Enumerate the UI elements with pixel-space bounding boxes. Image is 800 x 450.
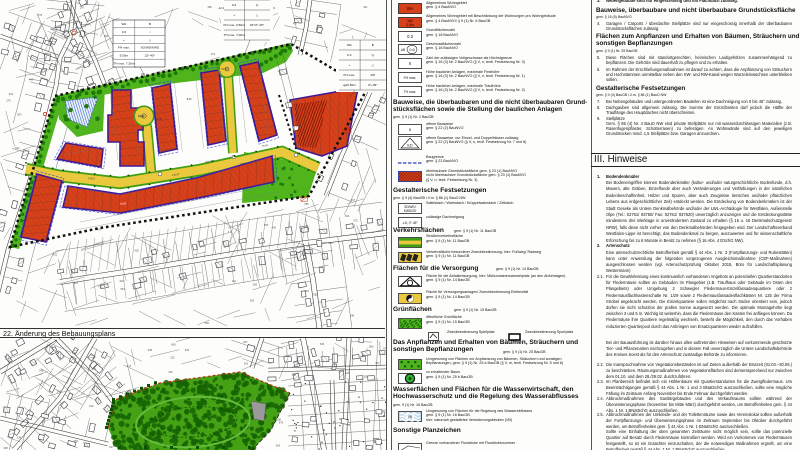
svg-text:0.3: 0.3 xyxy=(122,30,127,34)
svg-text:∠θ, 0°-45°: ∠θ, 0°-45° xyxy=(402,221,418,225)
svg-text:-12,4: -12,4 xyxy=(218,6,224,10)
svg-text:608: 608 xyxy=(171,343,176,347)
svg-text:634: 634 xyxy=(15,146,20,150)
svg-text:299: 299 xyxy=(253,282,258,286)
svg-text:243: 243 xyxy=(57,390,62,394)
svg-text:656: 656 xyxy=(328,241,333,245)
svg-text:B: B xyxy=(372,43,374,47)
svg-text:TH max. 7,00m: TH max. 7,00m xyxy=(224,33,246,37)
svg-text:DH 0°-45°: DH 0°-45° xyxy=(250,23,265,27)
svg-text:74,50: 74,50 xyxy=(221,67,228,71)
svg-text:556: 556 xyxy=(369,345,374,349)
svg-text:396: 396 xyxy=(345,214,350,218)
svg-text:248: 248 xyxy=(350,313,355,317)
svg-text:426: 426 xyxy=(134,249,139,253)
svg-text:○: ○ xyxy=(149,30,151,34)
svg-text:542: 542 xyxy=(9,92,14,96)
svg-text:384: 384 xyxy=(74,439,79,443)
svg-text:2 Wo: 2 Wo xyxy=(406,23,414,27)
svg-text:276: 276 xyxy=(6,99,11,103)
svg-text:WA: WA xyxy=(406,6,413,11)
svg-text:340: 340 xyxy=(92,367,97,371)
svg-text:TH max.: TH max. xyxy=(403,90,416,94)
svg-text:347: 347 xyxy=(375,361,380,365)
svg-text:0.3: 0.3 xyxy=(407,34,413,39)
svg-text:qq/9,50m: qq/9,50m xyxy=(343,83,356,87)
svg-text:0.4: 0.4 xyxy=(347,53,352,57)
svg-text:426: 426 xyxy=(345,371,350,375)
svg-text:FH max. 9,50m: FH max. 9,50m xyxy=(224,23,246,27)
svg-text:636: 636 xyxy=(185,348,190,352)
svg-text:355: 355 xyxy=(304,202,309,206)
svg-text:9,50m: 9,50m xyxy=(120,54,129,58)
svg-text:0.6: 0.6 xyxy=(409,48,414,52)
svg-text:+: + xyxy=(233,13,235,17)
svg-text:329: 329 xyxy=(304,289,309,293)
svg-text:536: 536 xyxy=(320,342,325,346)
svg-text:472: 472 xyxy=(211,52,216,56)
svg-text:431: 431 xyxy=(363,5,368,9)
svg-text:74,50: 74,50 xyxy=(138,114,145,118)
svg-text:443: 443 xyxy=(29,78,34,82)
svg-text:407: 407 xyxy=(293,22,298,26)
svg-text:0°+45°: 0°+45° xyxy=(368,83,378,87)
svg-text:187: 187 xyxy=(80,5,85,9)
svg-text:FH max.: FH max. xyxy=(403,76,416,80)
svg-text:546: 546 xyxy=(292,372,297,376)
svg-text:432: 432 xyxy=(53,252,58,256)
svg-text:638: 638 xyxy=(148,348,153,352)
svg-text:534: 534 xyxy=(17,435,22,439)
svg-text:275: 275 xyxy=(353,218,358,222)
svg-text:VB: VB xyxy=(407,415,412,419)
svg-text:198: 198 xyxy=(104,34,109,38)
svg-text:198: 198 xyxy=(277,418,282,422)
svg-text:207: 207 xyxy=(243,340,248,344)
svg-text:+: + xyxy=(123,38,125,42)
svg-text:483: 483 xyxy=(207,5,212,9)
svg-text:II: II xyxy=(408,61,410,66)
svg-text:FH max.: FH max. xyxy=(118,46,130,50)
svg-text:308: 308 xyxy=(3,446,8,450)
svg-text:+: + xyxy=(348,63,350,67)
svg-text:-8,45: -8,45 xyxy=(186,98,192,101)
svg-text:DH: DH xyxy=(371,73,375,77)
svg-text:683: 683 xyxy=(205,321,210,325)
svg-text:248: 248 xyxy=(39,369,44,373)
svg-text:472: 472 xyxy=(127,364,132,368)
svg-text:162: 162 xyxy=(89,404,94,408)
svg-text:B: B xyxy=(149,22,151,26)
svg-text:22°-45°: 22°-45° xyxy=(145,54,156,58)
svg-text:145,67: 145,67 xyxy=(88,177,96,181)
svg-text:◎: ◎ xyxy=(256,3,259,7)
svg-text:550: 550 xyxy=(250,298,255,302)
svg-text:573: 573 xyxy=(38,13,43,17)
svg-text:585: 585 xyxy=(313,293,318,297)
svg-text:355: 355 xyxy=(364,375,369,379)
svg-text:222: 222 xyxy=(170,356,175,360)
svg-text:◎: ◎ xyxy=(371,53,374,57)
svg-text:342: 342 xyxy=(244,362,249,366)
svg-text:-18,45: -18,45 xyxy=(155,118,162,121)
svg-text:667: 667 xyxy=(351,198,356,202)
svg-text:ED: ED xyxy=(407,144,413,148)
svg-text:252: 252 xyxy=(168,370,173,374)
svg-text:605: 605 xyxy=(276,444,281,448)
svg-text:554: 554 xyxy=(120,287,125,291)
svg-text:FH max.: FH max. xyxy=(343,73,355,77)
svg-text:ΔB: ΔB xyxy=(400,48,404,52)
svg-text:SO/WD/KWD: SO/WD/KWD xyxy=(141,46,160,50)
svg-text:0.3: 0.3 xyxy=(232,3,237,7)
svg-text:KWD/ZD: KWD/ZD xyxy=(403,209,416,213)
svg-text:603: 603 xyxy=(17,113,22,117)
svg-text:TH max. 7,30m: TH max. 7,30m xyxy=(113,61,135,65)
